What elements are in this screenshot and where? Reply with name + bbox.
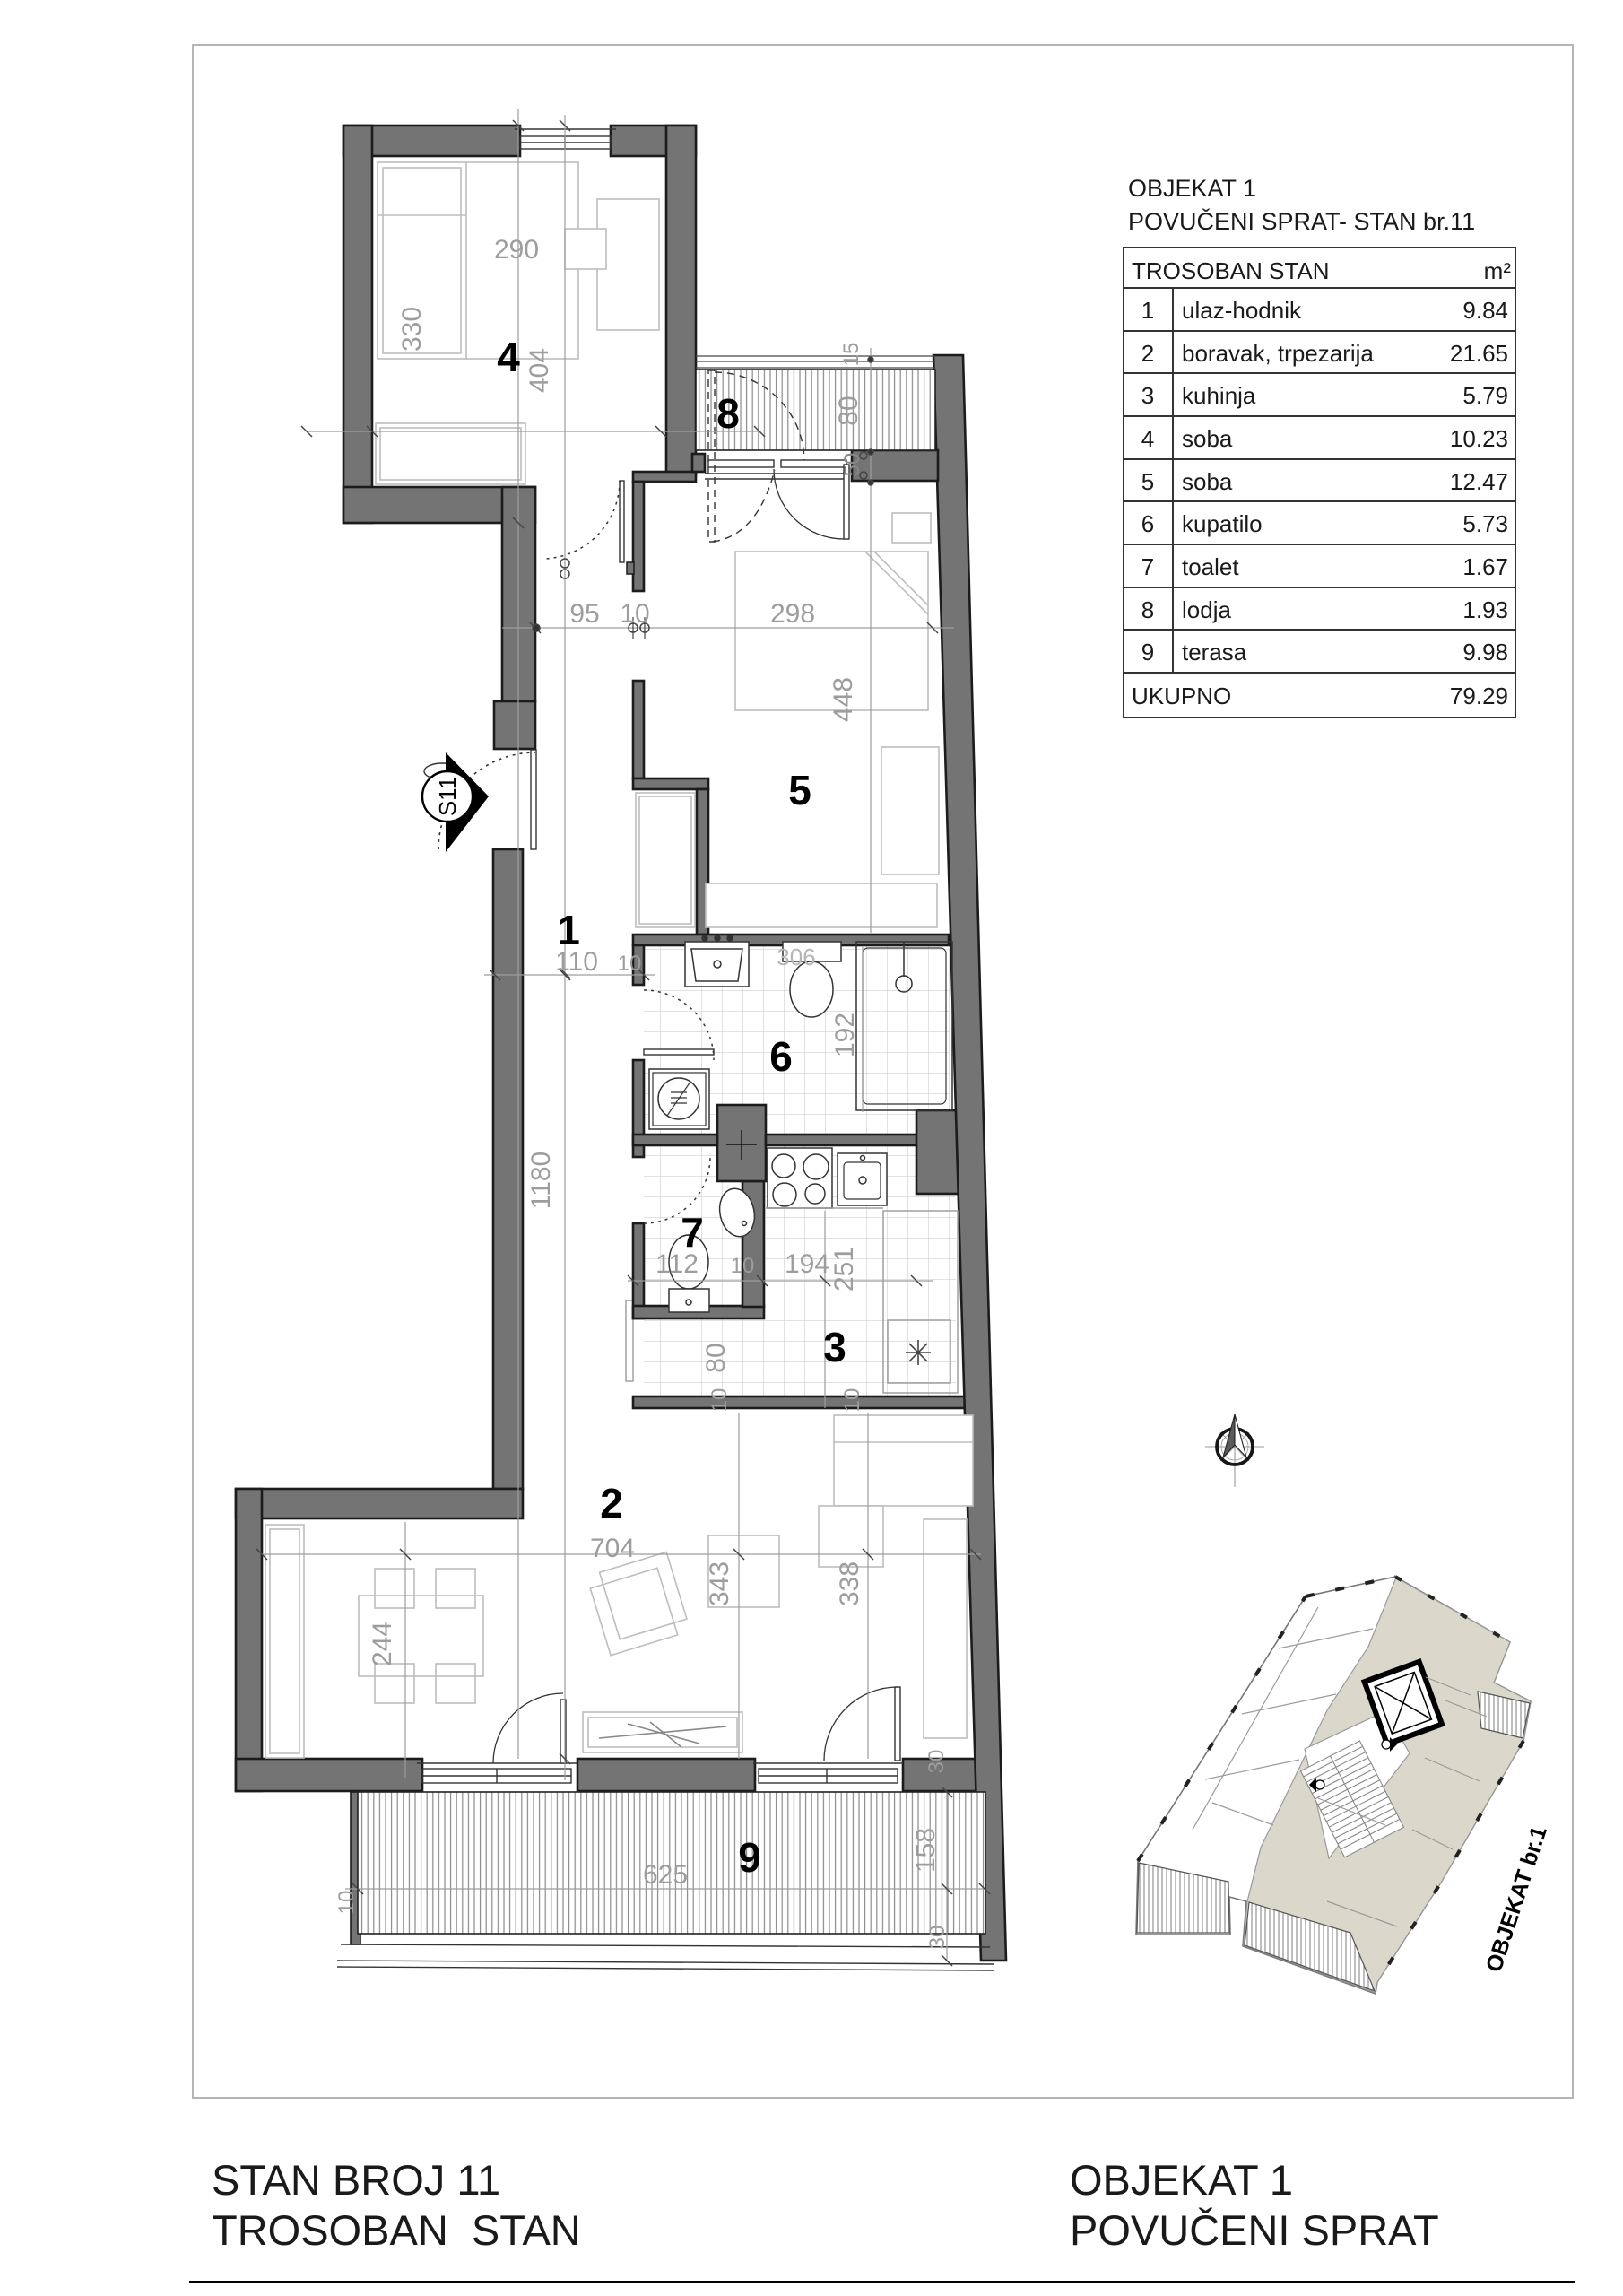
svg-text:80: 80 xyxy=(701,1343,731,1372)
svg-text:POVUČENI SPRAT- STAN br.11: POVUČENI SPRAT- STAN br.11 xyxy=(1128,207,1475,235)
svg-text:lodja: lodja xyxy=(1182,596,1231,623)
svg-text:9: 9 xyxy=(1141,639,1154,665)
svg-text:STAN BROJ 11: STAN BROJ 11 xyxy=(212,2156,500,2204)
svg-text:6: 6 xyxy=(1141,510,1154,537)
svg-text:OBJEKAT 1: OBJEKAT 1 xyxy=(1070,2156,1293,2204)
svg-text:10: 10 xyxy=(334,1891,359,1915)
svg-text:15: 15 xyxy=(839,343,864,367)
svg-text:S11: S11 xyxy=(434,777,461,816)
svg-text:10.23: 10.23 xyxy=(1450,425,1508,452)
svg-text:625: 625 xyxy=(643,1860,688,1890)
svg-text:5: 5 xyxy=(1141,468,1154,495)
svg-text:7: 7 xyxy=(681,1209,704,1256)
svg-text:10: 10 xyxy=(707,1388,732,1413)
svg-text:10: 10 xyxy=(840,1388,864,1413)
svg-text:toalet: toalet xyxy=(1182,553,1239,580)
svg-text:3: 3 xyxy=(1141,382,1154,409)
svg-text:338: 338 xyxy=(835,1561,864,1606)
svg-text:2: 2 xyxy=(600,1480,623,1526)
svg-text:12.47: 12.47 xyxy=(1450,468,1508,495)
svg-text:3: 3 xyxy=(823,1324,846,1370)
svg-text:158: 158 xyxy=(911,1828,941,1873)
svg-text:306: 306 xyxy=(777,944,815,970)
svg-text:21.65: 21.65 xyxy=(1450,340,1508,367)
svg-text:4: 4 xyxy=(1141,425,1154,452)
svg-text:terasa: terasa xyxy=(1182,639,1247,665)
svg-text:UKUPNO: UKUPNO xyxy=(1132,683,1231,709)
svg-text:1: 1 xyxy=(557,907,580,953)
svg-text:244: 244 xyxy=(368,1622,397,1666)
svg-text:9.98: 9.98 xyxy=(1462,639,1508,665)
svg-text:soba: soba xyxy=(1182,425,1233,452)
svg-text:1180: 1180 xyxy=(526,1152,556,1210)
svg-text:298: 298 xyxy=(770,599,815,629)
svg-text:290: 290 xyxy=(494,235,539,265)
svg-text:TROSOBAN STAN: TROSOBAN STAN xyxy=(1132,257,1330,284)
svg-text:1.67: 1.67 xyxy=(1462,553,1508,580)
svg-text:1: 1 xyxy=(1141,297,1154,324)
svg-text:194: 194 xyxy=(785,1249,829,1279)
svg-text:10: 10 xyxy=(618,952,642,976)
svg-text:OBJEKAT 1: OBJEKAT 1 xyxy=(1128,175,1256,202)
svg-text:404: 404 xyxy=(525,348,554,393)
svg-text:1.93: 1.93 xyxy=(1462,596,1508,623)
svg-text:30: 30 xyxy=(924,1750,949,1774)
svg-text:30: 30 xyxy=(925,1926,950,1950)
svg-text:8: 8 xyxy=(716,390,740,437)
svg-text:704: 704 xyxy=(590,1534,635,1563)
svg-text:2: 2 xyxy=(1141,340,1154,367)
svg-text:192: 192 xyxy=(830,1013,860,1057)
svg-text:448: 448 xyxy=(829,677,858,722)
svg-text:10: 10 xyxy=(620,599,649,629)
svg-text:5.79: 5.79 xyxy=(1462,382,1508,409)
svg-text:soba: soba xyxy=(1182,468,1233,495)
svg-text:TROSOBAN STAN: TROSOBAN STAN xyxy=(212,2206,581,2254)
svg-text:9: 9 xyxy=(738,1834,761,1881)
svg-text:50: 50 xyxy=(840,453,864,477)
svg-text:ulaz-hodnik: ulaz-hodnik xyxy=(1182,297,1302,324)
svg-text:343: 343 xyxy=(705,1561,734,1606)
svg-text:6: 6 xyxy=(769,1033,793,1080)
svg-text:5.73: 5.73 xyxy=(1462,510,1508,537)
svg-text:330: 330 xyxy=(397,307,427,352)
svg-text:boravak, trpezarija: boravak, trpezarija xyxy=(1182,340,1374,367)
svg-text:8: 8 xyxy=(1141,596,1154,623)
svg-text:m²: m² xyxy=(1484,257,1512,284)
svg-text:80: 80 xyxy=(834,396,864,425)
svg-text:79.29: 79.29 xyxy=(1450,683,1508,709)
svg-text:kupatilo: kupatilo xyxy=(1182,510,1263,537)
svg-text:4: 4 xyxy=(497,334,520,380)
svg-text:10: 10 xyxy=(731,1254,755,1278)
svg-text:kuhinja: kuhinja xyxy=(1182,382,1256,409)
svg-text:9.84: 9.84 xyxy=(1462,297,1508,324)
svg-text:251: 251 xyxy=(829,1247,859,1291)
svg-text:5: 5 xyxy=(788,767,811,813)
svg-text:95: 95 xyxy=(569,599,599,629)
svg-text:7: 7 xyxy=(1141,553,1154,580)
svg-text:POVUČENI SPRAT: POVUČENI SPRAT xyxy=(1070,2206,1439,2254)
